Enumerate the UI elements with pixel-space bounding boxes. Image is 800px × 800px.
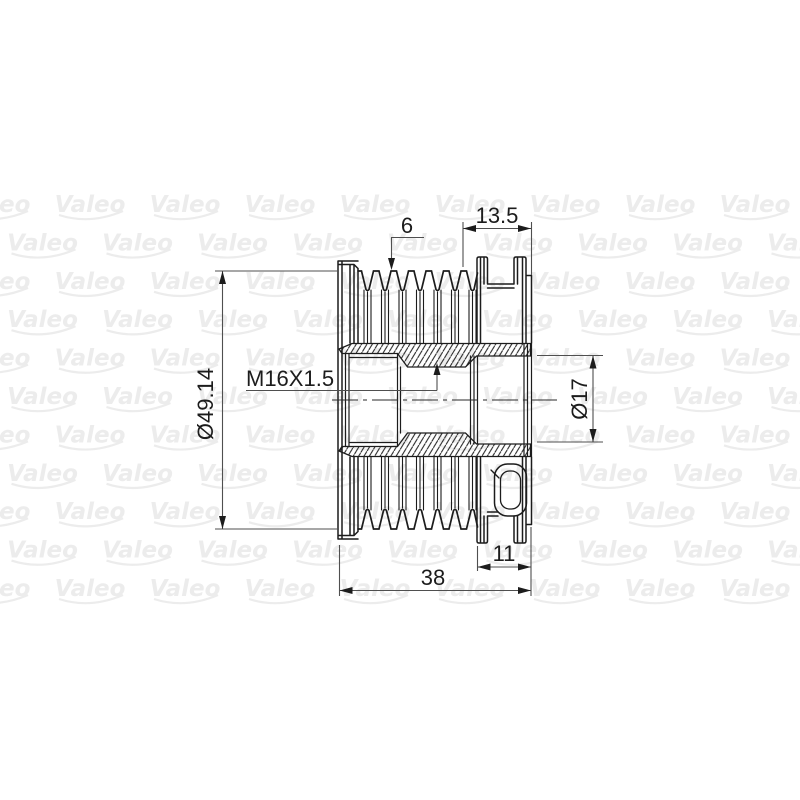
watermark-logo: Valeo xyxy=(672,307,743,334)
watermark-logo: Valeo xyxy=(767,230,800,257)
watermark-logo: Valeo xyxy=(55,499,126,526)
watermark-logo: Valeo xyxy=(102,230,173,257)
watermark-logo: Valeo xyxy=(530,576,601,603)
watermark-logo: Valeo xyxy=(150,576,221,603)
watermark-logo: Valeo xyxy=(245,192,316,219)
watermark-logo: Valeo xyxy=(102,538,173,565)
watermark-logo: Valeo xyxy=(102,461,173,488)
watermark-logo: Valeo xyxy=(530,346,601,373)
watermark-logo: Valeo xyxy=(625,422,696,449)
label-bore-diameter: Ø17 xyxy=(567,378,592,420)
watermark-logo: Valeo xyxy=(0,192,30,219)
svg-text:Valeo: Valeo xyxy=(0,269,30,295)
svg-text:Valeo: Valeo xyxy=(0,192,30,218)
svg-text:Valeo: Valeo xyxy=(0,499,30,525)
watermark-logo: Valeo xyxy=(672,384,743,411)
watermark-logo: Valeo xyxy=(577,461,648,488)
label-belt-grooves: 6 xyxy=(401,213,413,238)
watermark-logo: Valeo xyxy=(625,346,696,373)
watermark-logo: Valeo xyxy=(530,269,601,296)
watermark-logo: Valeo xyxy=(767,461,800,488)
watermark-logo: Valeo xyxy=(292,307,363,334)
watermark-logo: Valeo xyxy=(387,230,458,257)
watermark-logo: Valeo xyxy=(197,307,268,334)
watermark-logo: Valeo xyxy=(482,384,553,411)
watermark-logo: Valeo xyxy=(482,307,553,334)
watermark-logo: Valeo xyxy=(55,422,126,449)
watermark-logo: Valeo xyxy=(0,499,30,526)
label-rear-hub-width: 11 xyxy=(493,541,516,566)
watermark-logo: Valeo xyxy=(55,576,126,603)
watermark-logo: Valeo xyxy=(245,576,316,603)
svg-text:Valeo: Valeo xyxy=(0,422,30,448)
watermark-logo: Valeo xyxy=(150,269,221,296)
product-image: ValeoValeoValeoValeoValeoValeoValeoValeo… xyxy=(0,0,800,800)
watermark-logo: Valeo xyxy=(197,230,268,257)
watermark-logo: Valeo xyxy=(577,307,648,334)
watermark-logo: Valeo xyxy=(245,269,316,296)
svg-text:Valeo: Valeo xyxy=(0,576,30,602)
watermark-logo: Valeo xyxy=(245,499,316,526)
watermark-logo: Valeo xyxy=(625,192,696,219)
watermark-logo: Valeo xyxy=(197,461,268,488)
watermark-logo: Valeo xyxy=(530,499,601,526)
watermark-logo: Valeo xyxy=(530,422,601,449)
watermark-logo: Valeo xyxy=(720,576,791,603)
watermark-logo: Valeo xyxy=(55,192,126,219)
technical-drawing: ValeoValeoValeoValeoValeoValeoValeoValeo… xyxy=(0,0,800,800)
svg-text:Valeo: Valeo xyxy=(0,346,30,372)
watermark-logo: Valeo xyxy=(625,499,696,526)
watermark-logo: Valeo xyxy=(7,384,78,411)
watermark-logo: Valeo xyxy=(55,269,126,296)
watermark-logo: Valeo xyxy=(720,192,791,219)
watermark-logo: Valeo xyxy=(767,307,800,334)
watermark-logo: Valeo xyxy=(767,384,800,411)
watermark-logo: Valeo xyxy=(7,461,78,488)
label-outer-diameter: Ø49.14 xyxy=(193,368,218,440)
watermark-logo: Valeo xyxy=(7,538,78,565)
watermark-logo: Valeo xyxy=(720,422,791,449)
watermark-logo: Valeo xyxy=(767,538,800,565)
watermark-logo: Valeo xyxy=(387,461,458,488)
watermark-logo: Valeo xyxy=(0,576,30,603)
watermark-logo: Valeo xyxy=(102,307,173,334)
watermark-logo: Valeo xyxy=(577,230,648,257)
watermark-logo: Valeo xyxy=(292,538,363,565)
watermark-logo: Valeo xyxy=(720,499,791,526)
watermark-logo: Valeo xyxy=(530,192,601,219)
label-overall-width: 38 xyxy=(421,565,445,590)
watermark-logo: Valeo xyxy=(625,269,696,296)
watermark-logo: Valeo xyxy=(577,538,648,565)
watermark-logo: Valeo xyxy=(0,269,30,296)
label-thread-spec: M16X1.5 xyxy=(246,366,334,391)
watermark-logo: Valeo xyxy=(102,384,173,411)
watermark-logo: Valeo xyxy=(625,576,696,603)
watermark-logo: Valeo xyxy=(0,422,30,449)
watermark-logo: Valeo xyxy=(672,538,743,565)
watermark-logo: Valeo xyxy=(150,499,221,526)
watermark-logo: Valeo xyxy=(482,230,553,257)
label-front-section-width: 13.5 xyxy=(476,203,519,228)
watermark-logo: Valeo xyxy=(197,538,268,565)
watermark-logo: Valeo xyxy=(387,538,458,565)
watermark-logo: Valeo xyxy=(672,230,743,257)
watermark-logo: Valeo xyxy=(245,422,316,449)
watermark-logo: Valeo xyxy=(720,346,791,373)
watermark-logo: Valeo xyxy=(340,192,411,219)
watermark-logo: Valeo xyxy=(0,346,30,373)
watermark-logo: Valeo xyxy=(55,346,126,373)
watermark-logo: Valeo xyxy=(292,230,363,257)
watermark-logo: Valeo xyxy=(292,461,363,488)
watermark-logo: Valeo xyxy=(720,269,791,296)
watermark-logo: Valeo xyxy=(672,461,743,488)
watermark-logo: Valeo xyxy=(7,307,78,334)
watermark-logo: Valeo xyxy=(387,307,458,334)
watermark-logo: Valeo xyxy=(150,192,221,219)
watermark-logo: Valeo xyxy=(7,230,78,257)
